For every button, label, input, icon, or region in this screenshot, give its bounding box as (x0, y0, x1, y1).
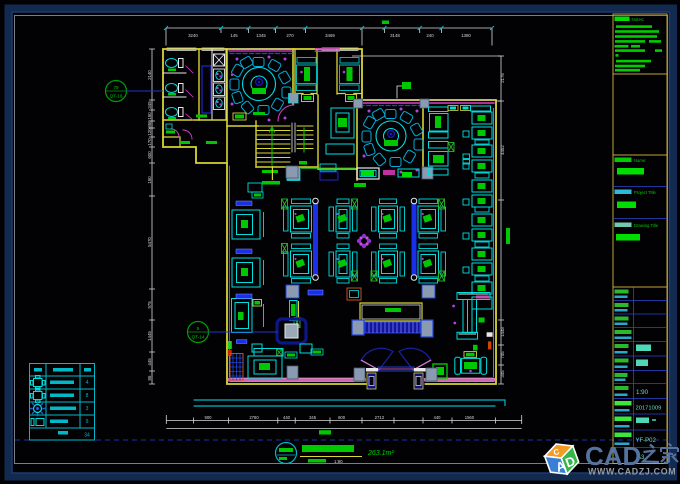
svg-text:3148: 3148 (390, 33, 400, 38)
svg-text:2176: 2176 (500, 73, 505, 83)
svg-text:79: 79 (113, 85, 119, 90)
svg-text:345: 345 (309, 415, 317, 420)
svg-text:270: 270 (286, 33, 294, 38)
svg-text:QT-16: QT-16 (110, 94, 123, 99)
svg-text:QT-14: QT-14 (192, 335, 205, 340)
svg-text:34: 34 (84, 433, 90, 439)
svg-text:Drawing Title: Drawing Title (634, 223, 659, 228)
svg-text:4452: 4452 (500, 145, 505, 155)
svg-text:1380: 1380 (461, 33, 471, 38)
svg-text:900: 900 (205, 415, 213, 420)
svg-text:1560: 1560 (465, 415, 475, 420)
svg-text:345: 345 (147, 101, 152, 109)
svg-text:Notes:: Notes: (632, 17, 645, 22)
svg-text:2713: 2713 (375, 415, 385, 420)
svg-text:3469: 3469 (325, 33, 335, 38)
svg-text:150: 150 (147, 176, 152, 184)
svg-text:850: 850 (147, 120, 152, 128)
svg-text:3240: 3240 (188, 33, 198, 38)
svg-text:445: 445 (147, 358, 152, 366)
svg-text:2780: 2780 (249, 415, 259, 420)
svg-text:1345: 1345 (256, 33, 266, 38)
svg-text:440: 440 (434, 415, 442, 420)
svg-text:5470: 5470 (147, 237, 152, 247)
svg-text:WWW.CADZJ.COM: WWW.CADZJ.COM (588, 467, 676, 477)
svg-text:263.1m²: 263.1m² (367, 450, 394, 457)
svg-text:600: 600 (147, 151, 152, 159)
svg-text:Name:: Name: (634, 158, 646, 163)
svg-text:Project Title: Project Title (634, 190, 657, 195)
svg-text:2140: 2140 (147, 70, 152, 80)
svg-text:1:90: 1:90 (334, 459, 343, 464)
svg-text:20171009: 20171009 (636, 406, 662, 412)
svg-text:745: 745 (500, 351, 505, 359)
svg-text:4: 4 (86, 380, 89, 386)
svg-text:170: 170 (147, 138, 152, 146)
svg-text:150: 150 (147, 112, 152, 120)
svg-text:440: 440 (283, 415, 291, 420)
svg-text:9: 9 (86, 419, 89, 425)
svg-text:345: 345 (500, 370, 505, 378)
svg-text:600: 600 (338, 415, 346, 420)
svg-text:8: 8 (86, 393, 89, 399)
svg-text:3: 3 (86, 406, 89, 412)
svg-text:975: 975 (147, 301, 152, 309)
svg-text:5: 5 (197, 326, 200, 331)
svg-text:145: 145 (230, 33, 238, 38)
svg-text:240: 240 (426, 33, 434, 38)
svg-text:1:90: 1:90 (636, 389, 649, 396)
svg-text:1445: 1445 (147, 331, 152, 341)
svg-text:1448: 1448 (500, 327, 505, 337)
svg-text:120: 120 (147, 128, 152, 136)
svg-text:85: 85 (147, 375, 152, 380)
